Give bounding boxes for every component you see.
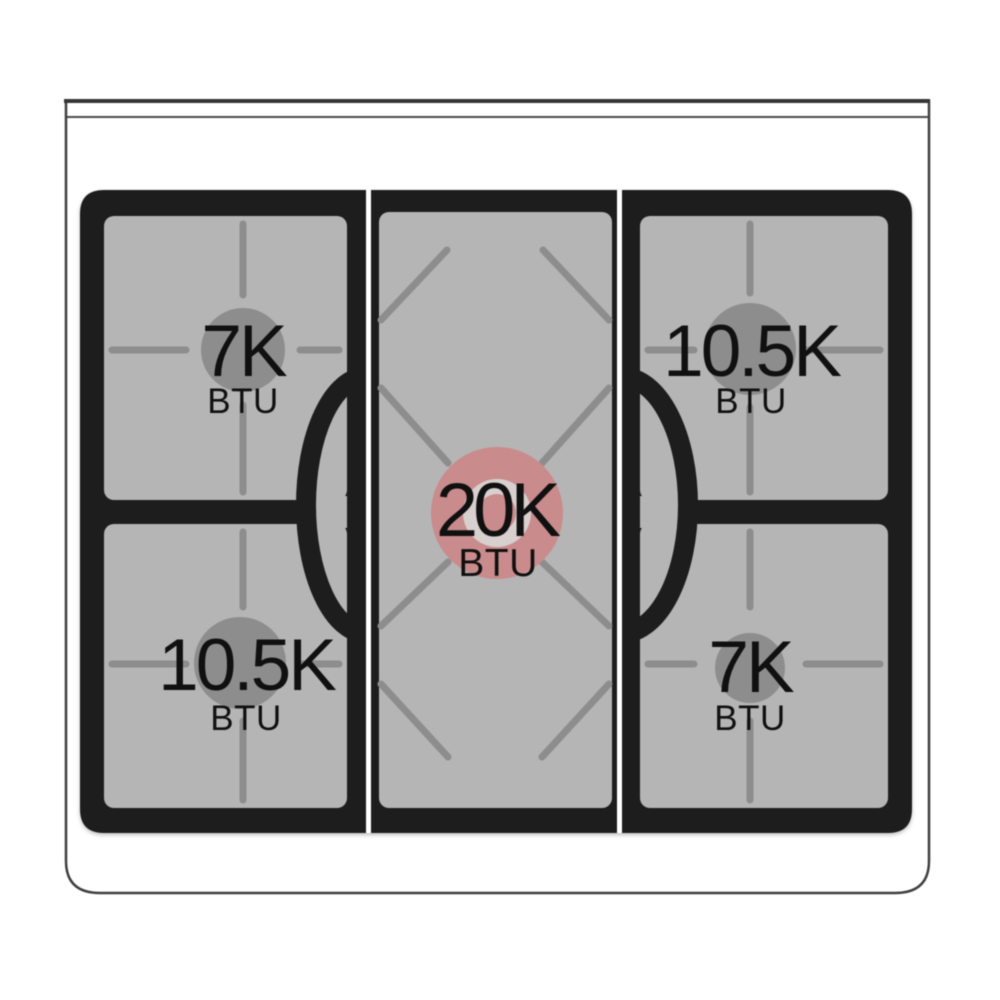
label-top-left-power: 7K <box>201 311 287 392</box>
label-center-power: 20K <box>436 468 561 553</box>
label-bottom-left-power: 10.5K <box>158 625 336 706</box>
label-center-unit: BTU <box>458 542 538 585</box>
label-bottom-right-power: 7K <box>708 627 794 708</box>
cooktop-svg: 7K BTU 10.5K BTU 20K BTU 10.5K BTU 7K BT… <box>0 0 1000 1000</box>
right-arc-infill <box>640 496 678 528</box>
label-bottom-right-unit: BTU <box>714 699 786 738</box>
label-top-right-power: 10.5K <box>663 311 841 392</box>
cooktop-diagram: 7K BTU 10.5K BTU 20K BTU 10.5K BTU 7K BT… <box>0 0 1000 1000</box>
left-arc-infill <box>316 496 347 528</box>
label-top-left-unit: BTU <box>207 382 279 421</box>
label-top-right-unit: BTU <box>715 382 787 421</box>
left-divider-seam <box>366 190 371 833</box>
cooktop-surface: 7K BTU 10.5K BTU 20K BTU 10.5K BTU 7K BT… <box>80 190 912 833</box>
label-bottom-left-unit: BTU <box>210 699 282 738</box>
right-divider-seam <box>617 190 622 833</box>
